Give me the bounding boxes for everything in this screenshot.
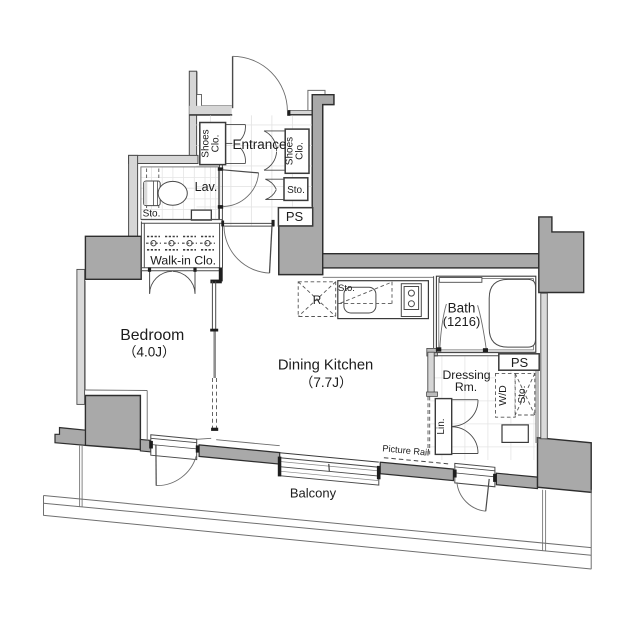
- svg-text:Bedroom: Bedroom: [120, 327, 184, 344]
- svg-text:W/D: W/D: [497, 385, 509, 406]
- svg-text:Rm.: Rm.: [455, 380, 477, 394]
- svg-text:(1216): (1216): [443, 314, 481, 329]
- svg-text:Clo.: Clo.: [295, 142, 306, 160]
- svg-text:Walk-in Clo.: Walk-in Clo.: [150, 254, 216, 268]
- svg-text:（7.7J）: （7.7J）: [300, 375, 353, 390]
- svg-text:Dining Kitchen: Dining Kitchen: [278, 358, 373, 374]
- svg-text:（4.0J）: （4.0J）: [123, 344, 176, 359]
- svg-text:Clo.: Clo.: [211, 135, 222, 153]
- svg-text:Lav.: Lav.: [195, 180, 218, 194]
- svg-text:PS: PS: [511, 355, 529, 370]
- svg-text:Balcony: Balcony: [290, 486, 337, 501]
- svg-text:Sto.: Sto.: [287, 185, 305, 196]
- svg-text:Sto.: Sto.: [338, 283, 355, 294]
- svg-text:Sto.: Sto.: [143, 208, 161, 219]
- svg-text:PS: PS: [286, 209, 304, 224]
- svg-text:R: R: [313, 293, 322, 307]
- svg-text:Sto.: Sto.: [517, 386, 528, 404]
- svg-text:Entrance: Entrance: [232, 137, 286, 152]
- svg-text:Lin.: Lin.: [436, 418, 447, 434]
